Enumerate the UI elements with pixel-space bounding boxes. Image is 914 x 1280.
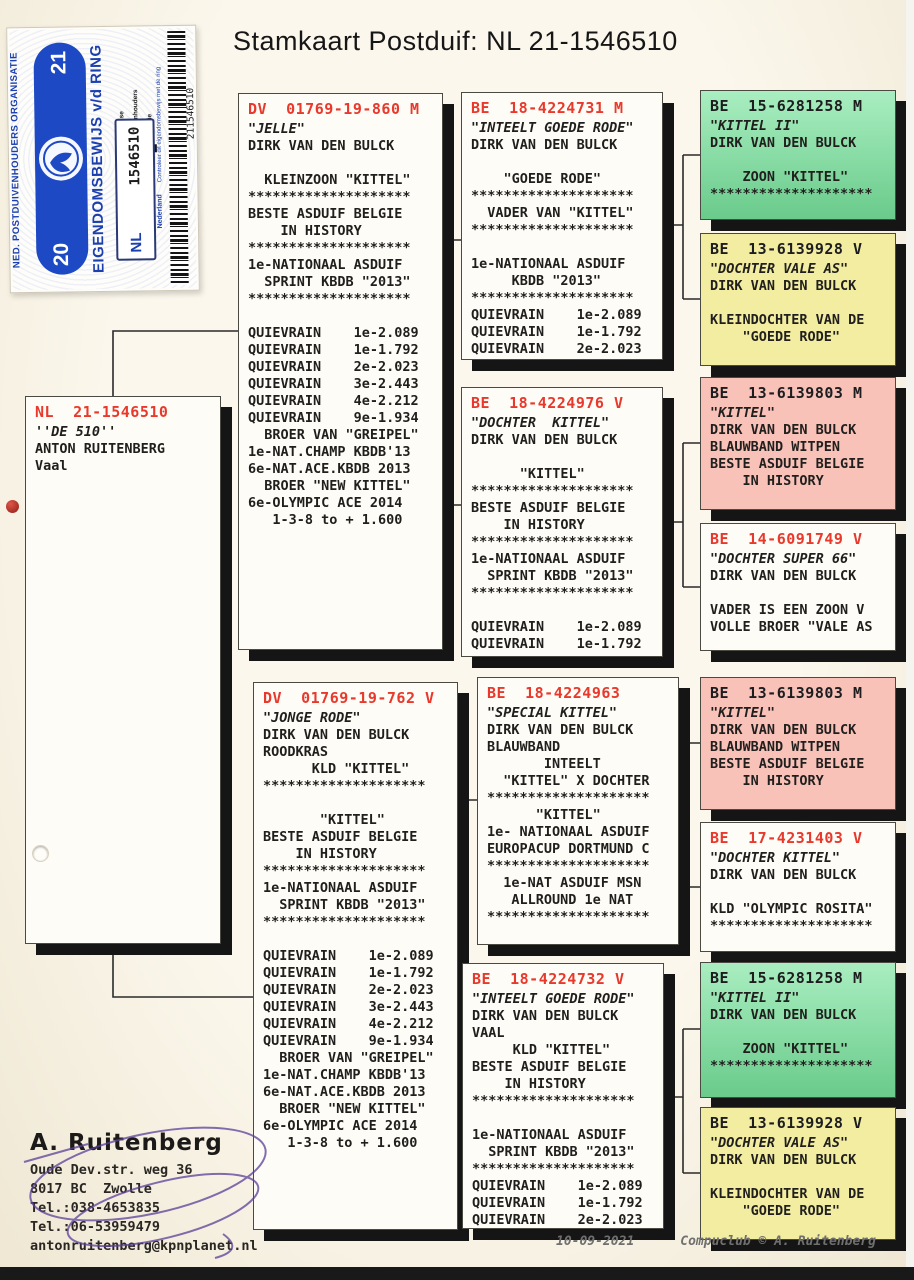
pigeon-name: "KITTEL" [710, 404, 887, 422]
sticker-year-21: 21 [47, 51, 71, 75]
pedigree-line: VOLLE BROER "VALE AS [710, 619, 887, 636]
pedigree-line: DIRK VAN DEN BULCK [710, 1152, 887, 1169]
ring-number: BE 18-4224732 V [472, 969, 655, 990]
ring-number: BE 18-4224976 V [471, 393, 654, 414]
pigeon-name: "DOCHTER VALE AS" [710, 1134, 887, 1152]
pigeon-logo [39, 136, 84, 181]
pedigree-line: DIRK VAN DEN BULCK [487, 722, 670, 739]
pedigree-line [710, 1169, 887, 1186]
pedigree-line: ******************** [263, 863, 449, 880]
pedigree-line: ******************** [472, 1161, 655, 1178]
pedigree-line: IN HISTORY [710, 473, 887, 490]
pedigree-box-ggp3: BE 13-6139803 M"KITTEL"DIRK VAN DEN BULC… [700, 377, 896, 510]
ring-number: DV 01769-19-762 V [263, 688, 449, 709]
pedigree-line: 6e-OLYMPIC ACE 2014 [248, 495, 434, 512]
pigeon-name: "SPECIAL KITTEL" [487, 704, 670, 722]
pigeon-name: "DOCHTER SUPER 66" [710, 550, 887, 568]
pedigree-line: 1e-NAT.CHAMP KBDB'13 [248, 444, 434, 461]
pedigree-line: QUIEVRAIN 2e-2.023 [248, 359, 434, 376]
pigeon-name: "DOCHTER KITTEL" [471, 414, 654, 432]
sticker-ring-number-box: 1546510 NL [114, 118, 156, 261]
pedigree-line: BESTE ASDUIF BELGIE [248, 206, 434, 223]
pedigree-line: ROODKRAS [263, 744, 449, 761]
pedigree-line: ******************** [471, 585, 654, 602]
pedigree-card-page: Stamkaart Postduif: NL 21-1546510 NED. P… [0, 0, 914, 1280]
pedigree-line: QUIEVRAIN 4e-2.212 [248, 393, 434, 410]
ring-number: BE 13-6139803 M [710, 383, 887, 404]
pedigree-line: "KITTEL" X DOCHTER [487, 773, 670, 790]
pedigree-line: 1e-NAT ASDUIF MSN [487, 875, 670, 892]
pedigree-line: QUIEVRAIN 4e-2.212 [263, 1016, 449, 1033]
pedigree-line: DIRK VAN DEN BULCK [471, 432, 654, 449]
pedigree-box-father: DV 01769-19-860 M"JELLE"DIRK VAN DEN BUL… [238, 93, 443, 650]
pedigree-line: ******************** [487, 790, 670, 807]
pigeon-name: ''DE 510'' [35, 423, 212, 441]
ring-number: BE 17-4231403 V [710, 828, 887, 849]
pedigree-line: ******************** [471, 188, 654, 205]
pedigree-line: BESTE ASDUIF BELGIE [710, 456, 887, 473]
pedigree-line: QUIEVRAIN 1e-2.089 [471, 619, 654, 636]
pedigree-line: DIRK VAN DEN BULCK [472, 1008, 655, 1025]
pedigree-line: ZOON "KITTEL" [710, 169, 887, 186]
pedigree-line: VAAL [472, 1025, 655, 1042]
pedigree-line: DIRK VAN DEN BULCK [710, 867, 887, 884]
pedigree-line: 1e- NATIONAAL ASDUIF [487, 824, 670, 841]
footer-date: 10-09-2021 [556, 1234, 634, 1249]
owner-phone-line: Tel.:038-4653835 [30, 1199, 258, 1218]
pedigree-line: IN HISTORY [263, 846, 449, 863]
sticker-organisation-text: NED. POSTDUIVENHOUDERS ORGANISATIE [8, 28, 34, 292]
pedigree-line: KLEINDOCHTER VAN DE [710, 312, 887, 329]
scan-edge-bottom [0, 1267, 914, 1280]
pedigree-line: QUIEVRAIN 1e-1.792 [248, 342, 434, 359]
pedigree-line: IN HISTORY [248, 223, 434, 240]
pedigree-line: QUIEVRAIN 2e-2.023 [263, 982, 449, 999]
pigeon-name: "JELLE" [248, 120, 434, 138]
barcode [167, 31, 189, 285]
pedigree-line [710, 884, 887, 901]
pedigree-line: ******************** [710, 918, 887, 935]
pedigree-line: DIRK VAN DEN BULCK [710, 1007, 887, 1024]
pedigree-line [710, 1024, 887, 1041]
pedigree-line: QUIEVRAIN 1e-1.792 [471, 636, 654, 653]
ring-number: BE 18-4224963 [487, 683, 670, 704]
pedigree-line: KLEINZOON "KITTEL" [248, 172, 434, 189]
pedigree-line: INTEELT [487, 756, 670, 773]
pedigree-line: QUIEVRAIN 3e-2.443 [263, 999, 449, 1016]
pedigree-line: KLD "OLYMPIC ROSITA" [710, 901, 887, 918]
pedigree-line [248, 155, 434, 172]
pedigree-line [710, 152, 887, 169]
pedigree-line: IN HISTORY [710, 773, 887, 790]
pedigree-line: 6e-NAT.ACE.KBDB 2013 [248, 461, 434, 478]
pedigree-line: VADER VAN "KITTEL" [471, 205, 654, 222]
pedigree-line: SPRINT KBDB "2013" [471, 568, 654, 585]
pedigree-line: QUIEVRAIN 2e-2.023 [472, 1212, 655, 1229]
punch-hole [32, 845, 49, 862]
pedigree-line [471, 602, 654, 619]
owner-name: A. Ruitenberg [30, 1130, 258, 1156]
pedigree-line: BESTE ASDUIF BELGIE [471, 500, 654, 517]
pedigree-box-ggp7: BE 15-6281258 M"KITTEL II"DIRK VAN DEN B… [700, 962, 896, 1098]
pedigree-box-ggp8: BE 13-6139928 V"DOCHTER VALE AS"DIRK VAN… [700, 1107, 896, 1240]
pedigree-line: QUIEVRAIN 1e-2.089 [471, 307, 654, 324]
pedigree-line [263, 931, 449, 948]
pedigree-line: BROER "NEW KITTEL" [248, 478, 434, 495]
footer: 10-09-2021 Compuclub © A. Ruitenberg [556, 1234, 876, 1249]
pedigree-line: QUIEVRAIN 2e-2.023 [471, 341, 654, 358]
pedigree-line [472, 1110, 655, 1127]
pedigree-box-gp3: BE 18-4224963"SPECIAL KITTEL"DIRK VAN DE… [477, 677, 679, 945]
pedigree-line: ******************** [248, 240, 434, 257]
pedigree-line: BESTE ASDUIF BELGIE [263, 829, 449, 846]
pedigree-box-ggp5: BE 13-6139803 M"KITTEL"DIRK VAN DEN BULC… [700, 677, 896, 810]
pedigree-line: QUIEVRAIN 3e-2.443 [248, 376, 434, 393]
page-title: Stamkaart Postduif: NL 21-1546510 [233, 26, 678, 57]
pedigree-line: SPRINT KBDB "2013" [248, 274, 434, 291]
pedigree-line: ******************** [472, 1093, 655, 1110]
pedigree-line: QUIEVRAIN 1e-1.792 [472, 1195, 655, 1212]
pedigree-line: ******************** [263, 914, 449, 931]
pedigree-line: VADER IS EEN ZOON V [710, 602, 887, 619]
pigeon-name: "JONGE RODE" [263, 709, 449, 727]
pigeon-name: "DOCHTER KITTEL" [710, 849, 887, 867]
pigeon-name: "INTEELT GOEDE RODE" [471, 119, 654, 137]
pedigree-line: KLD "KITTEL" [472, 1042, 655, 1059]
pedigree-line: EUROPACUP DORTMUND C [487, 841, 670, 858]
sticker-year-20: 20 [50, 243, 74, 267]
pedigree-line: ALLROUND 1e NAT [487, 892, 670, 909]
pedigree-line: IN HISTORY [472, 1076, 655, 1093]
red-seal-dot [6, 500, 19, 513]
pedigree-line: Vaal [35, 458, 212, 475]
pedigree-box-ggp2: BE 13-6139928 V"DOCHTER VALE AS"DIRK VAN… [700, 233, 896, 366]
pedigree-line: DIRK VAN DEN BULCK [710, 722, 887, 739]
pedigree-line: QUIEVRAIN 1e-2.089 [248, 325, 434, 342]
ownership-sticker: NED. POSTDUIVENHOUDERS ORGANISATIE 21 20… [6, 25, 200, 294]
pedigree-line: BROER "NEW KITTEL" [263, 1101, 449, 1118]
pedigree-line [471, 449, 654, 466]
ring-number: BE 13-6139803 M [710, 683, 887, 704]
pedigree-box-gp4: BE 18-4224732 V"INTEELT GOEDE RODE"DIRK … [462, 963, 664, 1229]
pedigree-line: ******************** [248, 189, 434, 206]
pedigree-line: BESTE ASDUIF BELGIE [472, 1059, 655, 1076]
pedigree-line: ******************** [471, 534, 654, 551]
sticker-country-label: Nederland [156, 194, 163, 228]
pedigree-line: ******************** [471, 483, 654, 500]
pedigree-line: "GOEDE RODE" [471, 171, 654, 188]
pigeon-name: "DOCHTER VALE AS" [710, 260, 887, 278]
pedigree-box-gp1: BE 18-4224731 M"INTEELT GOEDE RODE"DIRK … [461, 92, 663, 360]
pedigree-box-ggp4: BE 14-6091749 V"DOCHTER SUPER 66"DIRK VA… [700, 523, 896, 651]
pedigree-line: QUIEVRAIN 9e-1.934 [263, 1033, 449, 1050]
owner-phone-line: Tel.:06-53959479 [30, 1218, 258, 1237]
pigeon-name: "KITTEL II" [710, 117, 887, 135]
pedigree-line: 6e-OLYMPIC ACE 2014 [263, 1118, 449, 1135]
pedigree-line: 6e-NAT.ACE.KBDB 2013 [263, 1084, 449, 1101]
sticker-ownership-title: EIGENDOMSBEWIJS v/d RING [87, 27, 117, 291]
ring-number: DV 01769-19-860 M [248, 99, 434, 120]
pedigree-line: ******************** [471, 290, 654, 307]
pedigree-line: BLAUWBAND WITPEN [710, 739, 887, 756]
pedigree-line: KBDB "2013" [471, 273, 654, 290]
pedigree-line: QUIEVRAIN 1e-1.792 [263, 965, 449, 982]
pedigree-line: KLD "KITTEL" [263, 761, 449, 778]
pedigree-line: 1e-NATIONAAL ASDUIF [248, 257, 434, 274]
pedigree-line: ******************** [263, 778, 449, 795]
ring-number: BE 13-6139928 V [710, 1113, 887, 1134]
pedigree-line: BROER VAN "GREIPEL" [263, 1050, 449, 1067]
pedigree-line: BLAUWBAND [487, 739, 670, 756]
pedigree-line [710, 295, 887, 312]
pedigree-box-mother: DV 01769-19-762 V"JONGE RODE"DIRK VAN DE… [253, 682, 458, 1230]
ring-number: BE 15-6281258 M [710, 96, 887, 117]
pedigree-line: IN HISTORY [471, 517, 654, 534]
pedigree-line [248, 308, 434, 325]
pedigree-line [471, 154, 654, 171]
pedigree-line: QUIEVRAIN 1e-1.792 [471, 324, 654, 341]
pedigree-line: ******************** [710, 1058, 887, 1075]
pedigree-line: 1e-NATIONAAL ASDUIF [471, 256, 654, 273]
pedigree-line: ******************** [487, 858, 670, 875]
sticker-ring-number: 1546510 [127, 126, 144, 185]
pedigree-line: DIRK VAN DEN BULCK [710, 278, 887, 295]
pedigree-line: DIRK VAN DEN BULCK [710, 422, 887, 439]
pedigree-line: 1e-NAT.CHAMP KBDB'13 [263, 1067, 449, 1084]
pedigree-line: "KITTEL" [263, 812, 449, 829]
pedigree-line: "KITTEL" [471, 466, 654, 483]
pedigree-line: ******************** [710, 186, 887, 203]
pedigree-line [263, 795, 449, 812]
pedigree-line: QUIEVRAIN 1e-2.089 [263, 948, 449, 965]
pedigree-line: DIRK VAN DEN BULCK [248, 138, 434, 155]
pigeon-name: "KITTEL" [710, 704, 887, 722]
ring-number: BE 15-6281258 M [710, 968, 887, 989]
pedigree-line: QUIEVRAIN 1e-2.089 [472, 1178, 655, 1195]
pedigree-line: ANTON RUITENBERG [35, 441, 212, 458]
pigeon-name: "KITTEL II" [710, 989, 887, 1007]
pedigree-line: SPRINT KBDB "2013" [472, 1144, 655, 1161]
sticker-year-badge: 21 20 [33, 42, 88, 275]
ring-number: BE 13-6139928 V [710, 239, 887, 260]
owner-block: A. Ruitenberg Oude Dev.str. weg 36 8017 … [30, 1130, 258, 1256]
pedigree-line: DIRK VAN DEN BULCK [471, 137, 654, 154]
pedigree-line: DIRK VAN DEN BULCK [710, 568, 887, 585]
pedigree-line: DIRK VAN DEN BULCK [263, 727, 449, 744]
owner-address-line: Oude Dev.str. weg 36 [30, 1161, 258, 1180]
pedigree-line: ******************** [248, 291, 434, 308]
ring-number: BE 14-6091749 V [710, 529, 887, 550]
pedigree-line [471, 239, 654, 256]
pedigree-line: "GOEDE RODE" [710, 1203, 887, 1220]
sticker-check-text: Controleer dit eigendomsbewijs met de ri… [155, 32, 163, 182]
barcode-number: 211546510 [185, 88, 197, 140]
pedigree-line: 1-3-8 to + 1.600 [248, 512, 434, 529]
sticker-country-code: NL [128, 232, 145, 252]
owner-email-line: antonruitenberg@kpnplanet.nl [30, 1237, 258, 1256]
pedigree-box-ggp1: BE 15-6281258 M"KITTEL II"DIRK VAN DEN B… [700, 90, 896, 220]
pedigree-line: ZOON "KITTEL" [710, 1041, 887, 1058]
pedigree-line: 1e-NATIONAAL ASDUIF [472, 1127, 655, 1144]
pedigree-line: QUIEVRAIN 9e-1.934 [248, 410, 434, 427]
pedigree-line: ******************** [487, 909, 670, 926]
pedigree-line: "KITTEL" [487, 807, 670, 824]
pedigree-line: 1e-NATIONAAL ASDUIF [471, 551, 654, 568]
pigeon-name: "INTEELT GOEDE RODE" [472, 990, 655, 1008]
scan-edge-right [906, 0, 914, 1267]
pedigree-line: KLEINDOCHTER VAN DE [710, 1186, 887, 1203]
ring-number: NL 21-1546510 [35, 402, 212, 423]
pedigree-line: BESTE ASDUIF BELGIE [710, 756, 887, 773]
pedigree-line: 1-3-8 to + 1.600 [263, 1135, 449, 1152]
owner-address-line: 8017 BC Zwolle [30, 1180, 258, 1199]
ring-number: BE 18-4224731 M [471, 98, 654, 119]
pedigree-line: SPRINT KBDB "2013" [263, 897, 449, 914]
pedigree-box-ggp6: BE 17-4231403 V"DOCHTER KITTEL"DIRK VAN … [700, 822, 896, 952]
pedigree-box-gp2: BE 18-4224976 V"DOCHTER KITTEL"DIRK VAN … [461, 387, 663, 657]
pedigree-line: BLAUWBAND WITPEN [710, 439, 887, 456]
footer-credit: Compuclub © A. Ruitenberg [680, 1234, 876, 1249]
pedigree-line: ******************** [471, 222, 654, 239]
pedigree-line: "GOEDE RODE" [710, 329, 887, 346]
pedigree-line [710, 585, 887, 602]
pedigree-line: BROER VAN "GREIPEL" [248, 427, 434, 444]
pedigree-box-subject: NL 21-1546510''DE 510''ANTON RUITENBERGV… [25, 396, 221, 944]
pedigree-line: 1e-NATIONAAL ASDUIF [263, 880, 449, 897]
pedigree-line: DIRK VAN DEN BULCK [710, 135, 887, 152]
